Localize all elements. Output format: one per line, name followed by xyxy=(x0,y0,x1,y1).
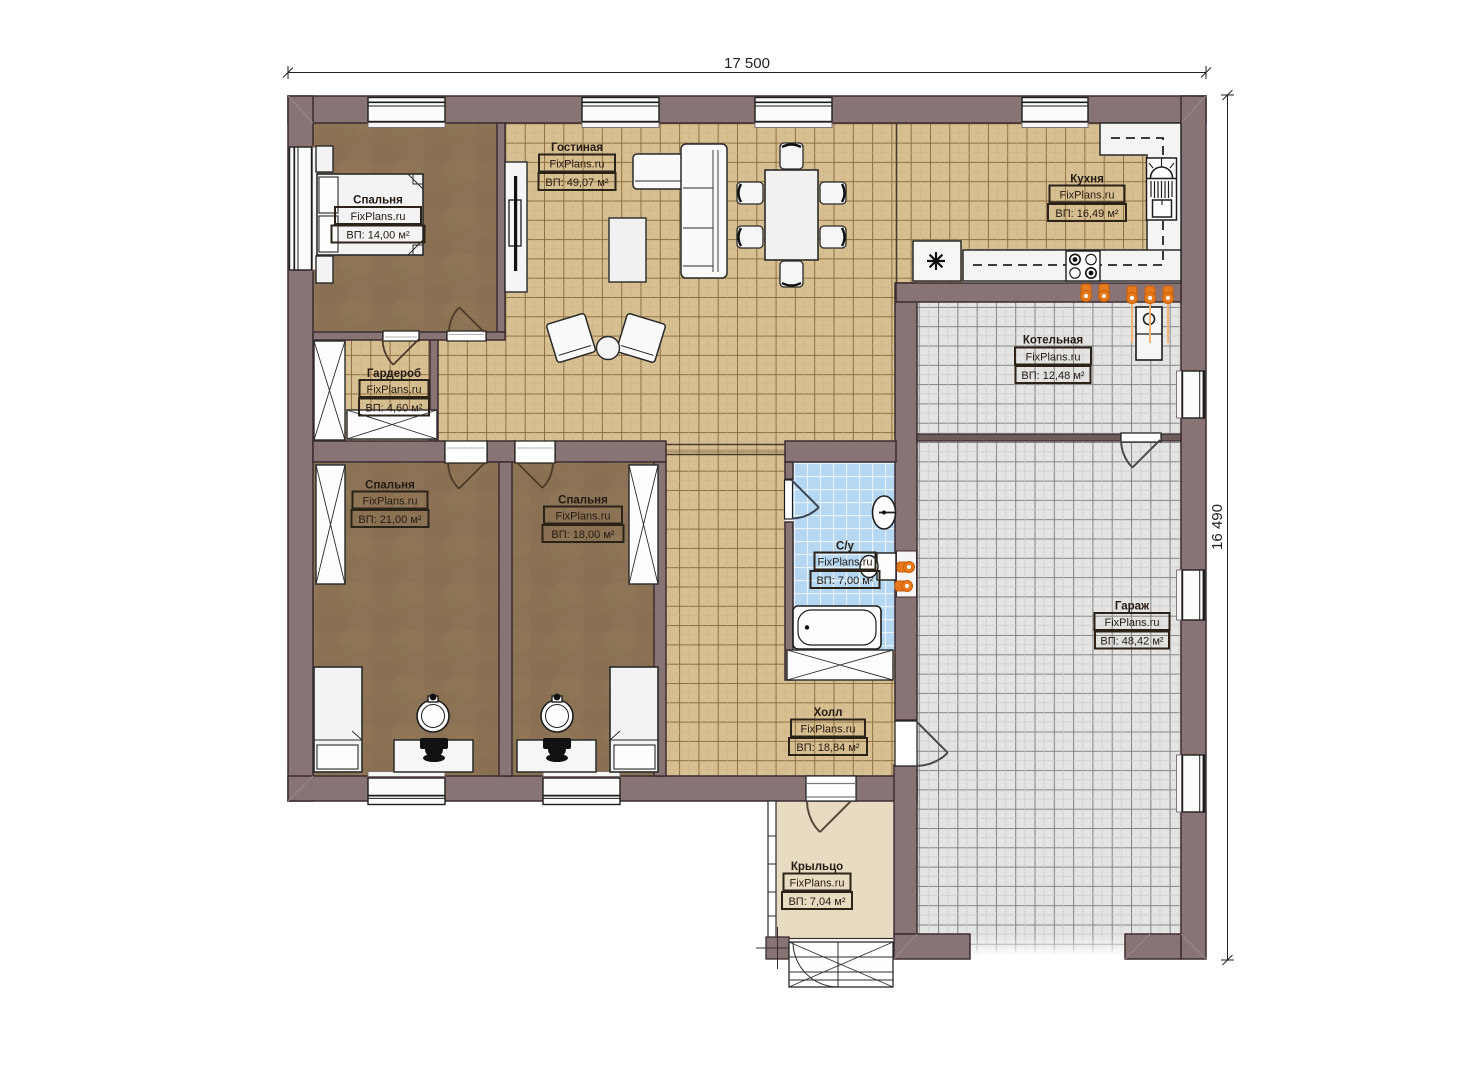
svg-text:ВП: 7,04 м²: ВП: 7,04 м² xyxy=(788,896,845,908)
svg-text:Спальня: Спальня xyxy=(353,195,403,207)
svg-text:ВП: 18,84 м²: ВП: 18,84 м² xyxy=(796,742,860,754)
svg-text:ВП: 21,00 м²: ВП: 21,00 м² xyxy=(358,514,422,526)
svg-text:FixPlans.ru: FixPlans.ru xyxy=(1059,190,1114,202)
svg-text:FixPlans.ru: FixPlans.ru xyxy=(800,724,855,736)
svg-text:Холл: Холл xyxy=(814,707,843,719)
svg-text:FixPlans.ru: FixPlans.ru xyxy=(555,511,610,523)
svg-text:ВП: 49,07 м²: ВП: 49,07 м² xyxy=(545,177,609,189)
svg-text:FixPlans.ru: FixPlans.ru xyxy=(366,384,421,396)
svg-text:ВП: 18,00 м²: ВП: 18,00 м² xyxy=(551,529,615,541)
svg-text:Кухня: Кухня xyxy=(1070,174,1104,186)
svg-text:ВП: 7,00 м²: ВП: 7,00 м² xyxy=(816,575,873,587)
svg-text:ВП: 4,60 м²: ВП: 4,60 м² xyxy=(365,403,422,415)
svg-text:17 500: 17 500 xyxy=(724,55,770,72)
svg-text:ВП: 48,42 м²: ВП: 48,42 м² xyxy=(1100,636,1164,648)
svg-text:Спальня: Спальня xyxy=(365,480,415,492)
svg-text:Гараж: Гараж xyxy=(1115,601,1150,613)
svg-text:16 490: 16 490 xyxy=(1209,504,1226,550)
svg-text:Крыльцо: Крыльцо xyxy=(791,861,843,873)
svg-text:FixPlans.ru: FixPlans.ru xyxy=(789,878,844,890)
svg-text:ВП: 14,00 м²: ВП: 14,00 м² xyxy=(346,230,410,242)
svg-text:ВП: 12,48 м²: ВП: 12,48 м² xyxy=(1021,370,1085,382)
svg-text:ВП: 16,49 м²: ВП: 16,49 м² xyxy=(1055,208,1119,220)
svg-text:FixPlans.ru: FixPlans.ru xyxy=(817,557,872,569)
svg-text:FixPlans.ru: FixPlans.ru xyxy=(1104,617,1159,629)
svg-text:FixPlans.ru: FixPlans.ru xyxy=(362,496,417,508)
svg-text:Гостиная: Гостиная xyxy=(551,142,603,154)
svg-text:С/у: С/у xyxy=(836,541,855,553)
svg-text:Спальня: Спальня xyxy=(558,495,608,507)
svg-text:Гардероб: Гардероб xyxy=(367,368,421,380)
svg-text:FixPlans.ru: FixPlans.ru xyxy=(350,211,405,223)
svg-text:FixPlans.ru: FixPlans.ru xyxy=(1025,352,1080,364)
svg-text:FixPlans.ru: FixPlans.ru xyxy=(549,159,604,171)
svg-text:Котельная: Котельная xyxy=(1023,335,1083,347)
